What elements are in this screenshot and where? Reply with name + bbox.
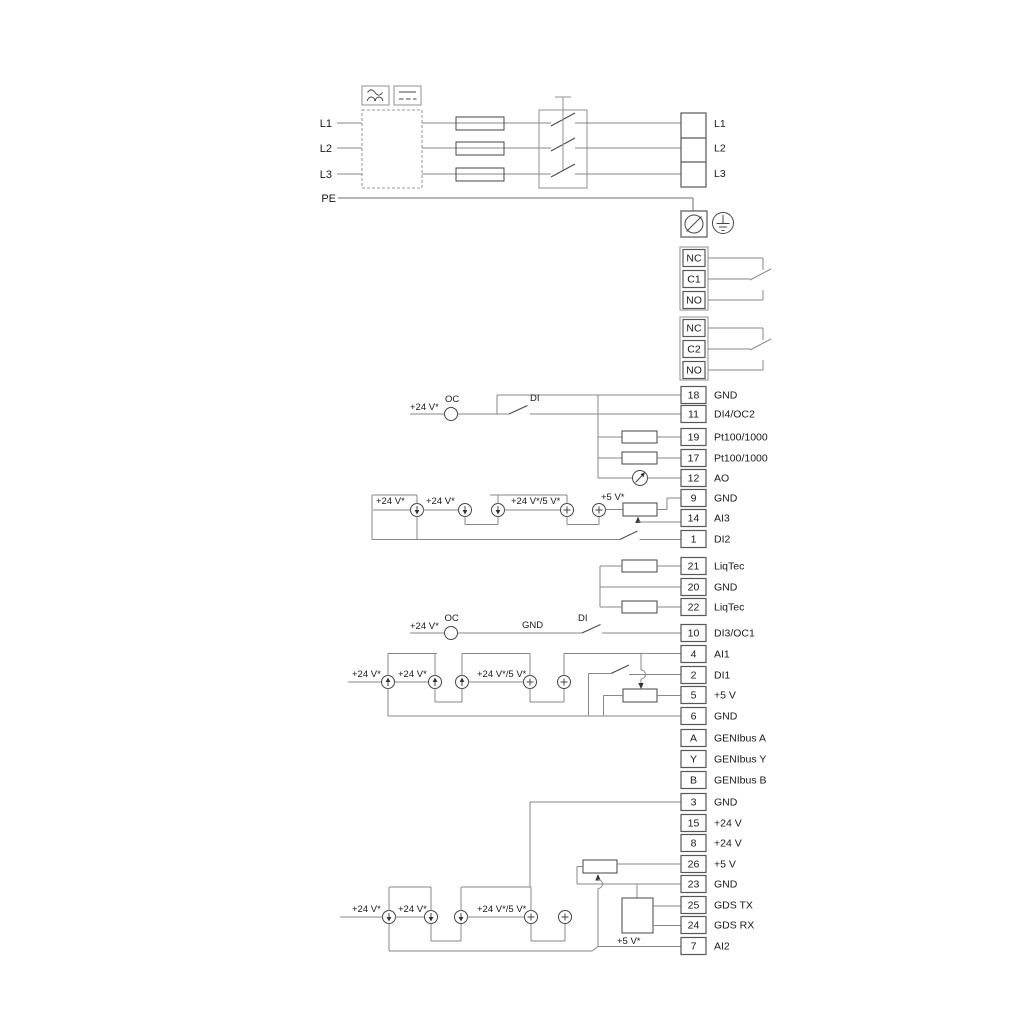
terminal-row-20: 20GND [681, 579, 738, 596]
output-line-label-l1: L1 [714, 118, 726, 130]
mains-output-block: L1 L2 L3 [681, 113, 726, 187]
di-switch-contact [509, 406, 528, 415]
terminal-row-25: 25GDS TX [681, 897, 753, 914]
v24-label: +24 V* [376, 496, 405, 507]
current-source-icon [382, 676, 395, 689]
terminal-number: A [690, 733, 697, 745]
potentiometer [623, 689, 657, 702]
open-collector-icon [445, 627, 458, 640]
dc-symbol-icon [394, 86, 421, 105]
terminal-label: +24 V [714, 838, 742, 850]
v24-label: +24 V* [352, 669, 381, 680]
terminal-row-4: 4AI1 [681, 646, 730, 663]
terminal-row-2: 2DI1 [681, 667, 731, 684]
terminal-label: +5 V [714, 859, 736, 871]
terminal-row-17: 17Pt100/1000 [681, 450, 768, 467]
terminal-row-11: 11DI4/OC2 [681, 406, 755, 423]
current-source-icon [411, 504, 424, 517]
output-line-label-l3: L3 [714, 168, 726, 180]
di1-switch-contact [611, 665, 629, 674]
terminal-row-12: 12AO [681, 470, 729, 487]
terminal-label: GENIbus B [714, 775, 767, 787]
terminal-label: DI1 [714, 670, 731, 682]
terminal-label: GND [714, 582, 738, 594]
terminal-number: 14 [688, 513, 700, 525]
current-source-icon [429, 676, 442, 689]
relay1-changeover-contact [708, 258, 771, 300]
terminal-label: AO [714, 473, 729, 485]
terminal-row-10: 10DI3/OC1 [681, 625, 755, 642]
terminal-number: 7 [691, 941, 697, 953]
input-line-label-l1: L1 [320, 118, 332, 130]
v24-label: +24 V* [352, 904, 381, 915]
relay2-c2-label: C2 [687, 344, 701, 356]
wiring-diagram-svg: L1 L2 L3 PE [0, 0, 1024, 1024]
analog-output-meter-icon [633, 471, 648, 486]
terminal-number: B [690, 775, 697, 787]
screw-terminal-icon [681, 211, 707, 237]
v24-label: +24 V* [398, 669, 427, 680]
output-line-label-l2: L2 [714, 143, 726, 155]
potentiometer [583, 860, 617, 873]
terminal-number: 24 [688, 920, 700, 932]
terminal-row-a: AGENIbus A [681, 730, 766, 747]
v24-label: +24 V* [410, 402, 439, 413]
terminal-number: 21 [688, 561, 700, 573]
di4-oc2-circuit: +24 V* OC DI [410, 393, 681, 478]
input-line-label-l2: L2 [320, 143, 332, 155]
terminal-number: 19 [688, 432, 700, 444]
input-line-label-l3: L3 [320, 169, 332, 181]
terminal-row-26: 26+5 V [681, 856, 736, 873]
ai1-supply-block: +24 V* +24 V* +24 V*/5 V* [348, 654, 681, 717]
terminal-label: Pt100/1000 [714, 432, 768, 444]
voltage-source-icon [559, 911, 572, 924]
v24-5v-label: +24 V*/5 V* [511, 496, 561, 507]
terminal-number: 25 [688, 900, 700, 912]
terminal-number: 22 [688, 602, 700, 614]
v5-label: +5 V* [617, 936, 641, 947]
potentiometer [623, 503, 657, 516]
current-source-icon [455, 911, 468, 924]
terminal-row-6: 6GND [681, 708, 738, 725]
voltage-source-icon [524, 676, 537, 689]
resistor-pt100-17 [622, 452, 657, 464]
v24-5v-label: +24 V*/5 V* [477, 904, 527, 915]
terminal-row-8: 8+24 V [681, 835, 742, 852]
wiring-diagram: L1 L2 L3 PE [0, 0, 1024, 1024]
oc-label: OC [445, 613, 459, 624]
terminal-number: 8 [691, 838, 697, 850]
gds-sensor-box [622, 898, 653, 933]
relay-2-block: NC C2 NO [680, 317, 771, 380]
terminal-label: GND [714, 390, 738, 402]
power-input-section: L1 L2 L3 PE [320, 86, 734, 237]
v24-5v-label: +24 V*/5 V* [477, 669, 527, 680]
terminal-number: 18 [688, 390, 700, 402]
v24-label: +24 V* [410, 621, 439, 632]
terminal-label: GDS RX [714, 920, 754, 932]
pt100-circuits [598, 431, 681, 464]
terminal-number: 3 [691, 797, 697, 809]
terminal-number: 9 [691, 493, 697, 505]
relay1-nc-label: NC [686, 253, 702, 265]
terminal-number: 6 [691, 711, 697, 723]
terminal-label: GDS TX [714, 900, 753, 912]
voltage-source-icon [558, 676, 571, 689]
pot-wiper-arrow [638, 683, 643, 689]
terminal-row-y: YGENIbus Y [681, 751, 766, 768]
resistor-liqtec-22 [622, 601, 657, 613]
open-collector-icon [445, 408, 458, 421]
v24-label: +24 V* [398, 904, 427, 915]
terminal-number: 20 [688, 582, 700, 594]
terminal-row-18: 18GND [681, 387, 738, 404]
gnd-label: GND [522, 620, 543, 631]
resistor-liqtec-21 [622, 560, 657, 572]
current-source-icon [459, 504, 472, 517]
terminal-row-7: 7AI2 [681, 938, 730, 955]
resistor-pt100-19 [622, 431, 657, 443]
current-source-icon [383, 911, 396, 924]
di-switch-contact [582, 625, 601, 634]
terminal-label: AI1 [714, 649, 730, 661]
terminal-label: DI2 [714, 534, 731, 546]
relay2-changeover-contact [708, 328, 771, 370]
terminal-row-15: 15+24 V [681, 815, 742, 832]
relay2-no-label: NO [686, 365, 702, 377]
terminal-number: 4 [691, 649, 697, 661]
input-line-label-pe: PE [321, 193, 336, 205]
oc-label: OC [445, 394, 459, 405]
v24-label: +24 V* [426, 496, 455, 507]
liqtec-circuit [600, 560, 681, 613]
terminal-number: 5 [691, 690, 697, 702]
terminal-label: AI2 [714, 941, 730, 953]
voltage-source-icon [525, 911, 538, 924]
ac-symbol-icon [362, 86, 389, 105]
terminal-label: AI3 [714, 513, 730, 525]
terminal-number: Y [690, 754, 697, 766]
terminal-number: 1 [691, 534, 697, 546]
current-source-icon [456, 676, 469, 689]
terminal-row-23: 23GND [681, 876, 738, 893]
terminal-label: +24 V [714, 818, 742, 830]
terminal-number: 2 [691, 670, 697, 682]
relay1-no-label: NO [686, 295, 702, 307]
terminal-label: GND [714, 493, 738, 505]
terminal-label: +5 V [714, 690, 736, 702]
terminal-number: 23 [688, 879, 700, 891]
terminal-number: 12 [688, 473, 700, 485]
terminal-row-14: 14AI3 [681, 510, 730, 527]
relay-1-block: NC C1 NO [680, 247, 771, 310]
ai2-gds-block: +24 V* +24 V* +24 V*/5 V* [340, 802, 681, 951]
terminal-number: 15 [688, 818, 700, 830]
v5-label: +5 V* [601, 492, 625, 503]
relay1-c1-label: C1 [687, 274, 701, 286]
terminal-label: GND [714, 879, 738, 891]
current-source-icon [492, 504, 505, 517]
ai3-supply-block: +24 V* +24 V* +24 V*/5 V* [372, 492, 681, 540]
terminal-row-22: 22LiqTec [681, 599, 744, 616]
analog-output-circuit [598, 471, 681, 486]
terminal-label: DI3/OC1 [714, 628, 755, 640]
di2-switch-contact [620, 531, 638, 540]
terminal-row-21: 21LiqTec [681, 558, 744, 575]
terminal-label: LiqTec [714, 561, 744, 573]
terminal-label: DI4/OC2 [714, 409, 755, 421]
terminal-row-9: 9GND [681, 490, 738, 507]
current-source-icon [425, 911, 438, 924]
terminal-number: 10 [688, 628, 700, 640]
terminal-strip: 18GND 11DI4/OC2 19Pt100/1000 17Pt100/100… [681, 387, 768, 955]
terminal-label: LiqTec [714, 602, 744, 614]
di3-oc1-circuit: +24 V* OC GND DI [410, 613, 681, 640]
terminal-number: 26 [688, 859, 700, 871]
di-label: DI [578, 613, 588, 624]
terminal-label: GND [714, 711, 738, 723]
terminal-row-1: 1DI2 [681, 531, 731, 548]
terminal-row-19: 19Pt100/1000 [681, 429, 768, 446]
di-label: DI [530, 393, 540, 404]
voltage-source-icon [561, 504, 574, 517]
terminal-row-5: 5+5 V [681, 687, 736, 704]
terminal-number: 17 [688, 453, 700, 465]
relay2-nc-label: NC [686, 323, 702, 335]
terminal-row-3: 3GND [681, 794, 738, 811]
voltage-source-icon [593, 504, 606, 517]
terminal-label: Pt100/1000 [714, 453, 768, 465]
terminal-row-24: 24GDS RX [681, 917, 754, 934]
earth-ground-icon [713, 213, 734, 234]
terminal-row-b: BGENIbus B [681, 772, 767, 789]
emc-filter-box [362, 110, 422, 188]
terminal-label: GND [714, 797, 738, 809]
terminal-label: GENIbus A [714, 733, 766, 745]
terminal-label: GENIbus Y [714, 754, 766, 766]
terminal-number: 11 [688, 409, 699, 421]
